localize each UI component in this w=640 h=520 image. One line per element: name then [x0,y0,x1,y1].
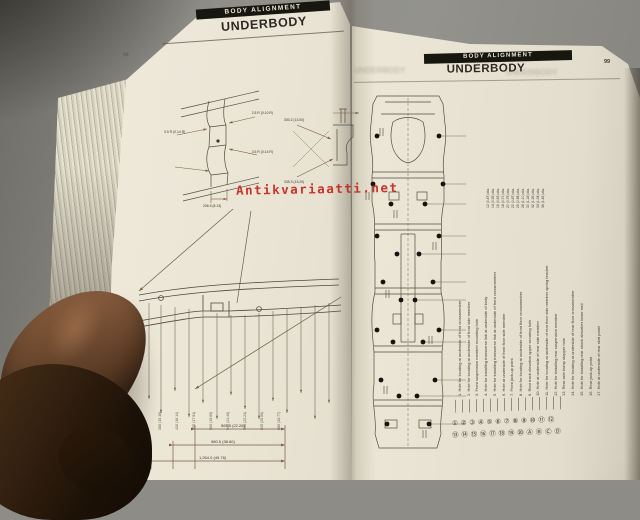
dim-label: 330.2 (13.00) [284,118,304,122]
note-line: 16. Rear jack-up point [587,208,596,396]
note-line: 14. Hole for locating at underside of re… [569,208,578,396]
dim-label: 1,264.0 (49.76) [199,455,227,460]
vertical-dimension-labels: 385 (15.16)410 (16.14)455 (17.91)500 (19… [152,325,330,430]
right-page-edge [624,68,640,480]
note-line: 7. Front jack-up point [508,208,517,396]
note-line: 8. Hole for locating at underside of fro… [517,208,526,396]
body-outline [370,96,446,448]
note-line: 17. Hole at underside of rear skirt pane… [595,208,604,396]
dim-label: 2.5 R (0.10 R) [252,111,273,115]
dimension-label: 545 (21.46) [220,325,237,430]
note-line: 12. Hole for installing rear suspension … [552,208,561,396]
note-line: 10. Hole at underside of rear side membe… [534,208,543,396]
hole-diameter-column: 12 (0.47) dia.14 (0.55) dia.16 (0.63) di… [486,124,548,208]
dimension-label: 500 (19.69) [203,325,220,430]
note-line: 9. Rear track elevation upper securing h… [526,208,535,396]
underbody-plan-diagram [349,84,467,466]
note-line: 6. Hole at underside of front floor side… [500,208,509,396]
dim-label: 3.5 R (0.14 R) [164,130,185,134]
dimension-label: 410 (16.14) [169,325,186,430]
show-through-text-left: UNDERBODY [354,66,406,75]
dimension-label: 455 (17.91) [186,325,203,430]
numbered-notes-list: 1. Hole for locating at underside of fro… [456,208,606,396]
dim-label: 3.5 R (0.14 R) [252,150,273,154]
detail2-labels: 330.2 (13.00) 335.3 (13.20) [284,118,304,184]
note-line: 3. Front suspension member mounting hole [473,208,482,396]
dimension-label: 680 (26.77) [271,325,288,430]
floor-pan-rails [139,279,341,327]
note-line: 4. Hole for installing transverse link a… [482,208,491,396]
nested-bottom-dimensions [151,425,285,469]
right-page-number: 99 [604,59,610,65]
right-page-title: UNDERBODY [420,62,552,76]
note-line: 13. Rear axle bump stopper hole [560,208,569,396]
leader-arrows [175,117,257,171]
dimension-label: 635 (25.00) [254,325,271,430]
hole-diameter-entry: 36 (1.42) dia. [541,124,546,208]
dim-label: 980.5 (38.60) [211,439,235,444]
dimension-label: 590 (23.23) [237,325,254,430]
note-line: 5. Hole for installing transverse link a… [491,208,500,396]
note-line: 11. Hole for locating at underside of re… [543,208,552,396]
note-line: 2. Hole for locating at underside of fro… [465,208,474,396]
note-line: 15. Hole for installing rear shock absor… [578,208,587,396]
note-line: 1. Hole for locating at underside of fro… [456,208,465,396]
left-page-number: 98 [123,52,129,58]
cross-leaders [293,131,329,167]
